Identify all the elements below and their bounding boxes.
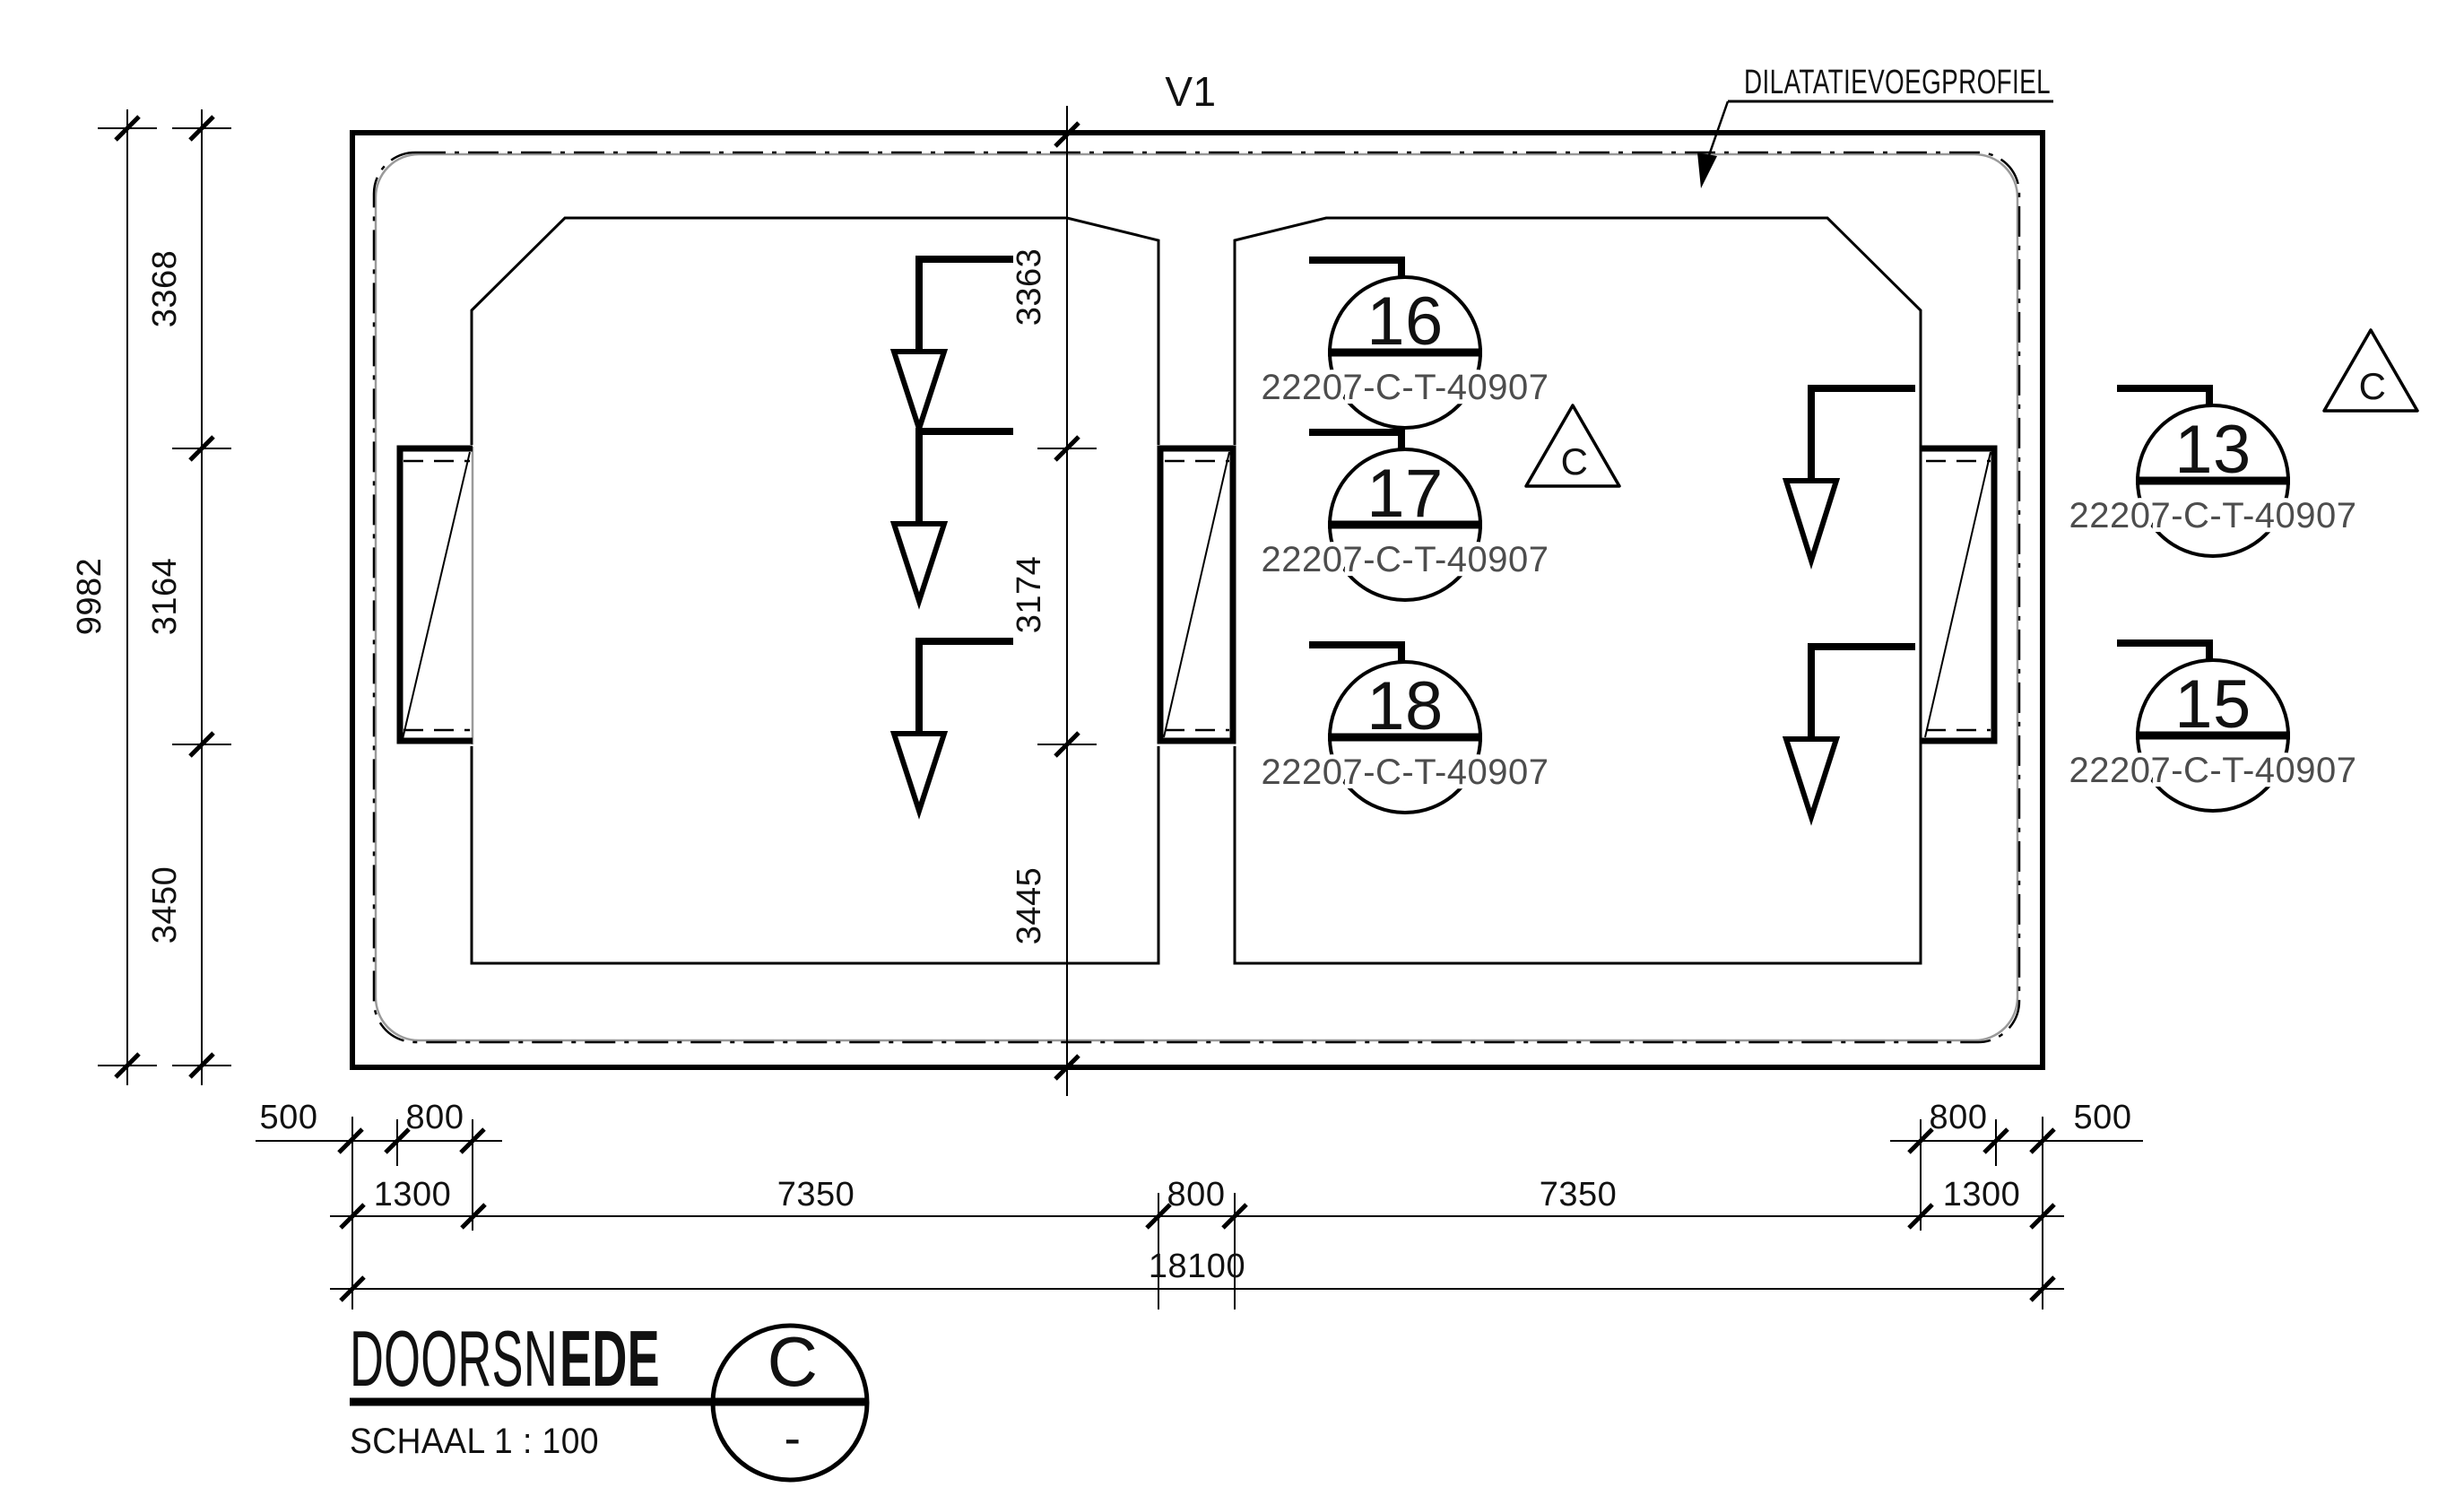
part-tag-13: 13 22207-C-T-40907 <box>2069 388 2356 556</box>
section-drawing-canvas: DILATATIEVOEGPROFIEL V1 9982 3368 3164 3… <box>0 0 2464 1505</box>
triangle-label: C <box>1561 440 1589 483</box>
section-circle-letter: C <box>768 1322 819 1401</box>
triangle-marker-right: C <box>2324 330 2417 411</box>
dim-800-right: 800 <box>1930 1099 1988 1136</box>
tag-code: 22207-C-T-40907 <box>1261 368 1549 407</box>
dim-7350-left: 7350 <box>777 1176 855 1214</box>
tag-number: 15 <box>2174 666 2251 743</box>
dim-left-1: 3368 <box>146 250 184 328</box>
dim-left-2: 3164 <box>146 558 184 636</box>
dim-left-total: 9982 <box>71 558 108 636</box>
triangle-label: C <box>2359 365 2387 407</box>
page-title: DOORSN <box>350 1314 558 1403</box>
left-wall-opening <box>395 445 478 746</box>
technical-drawing: DILATATIEVOEGPROFIEL V1 9982 3368 3164 3… <box>0 0 2464 1505</box>
dim-7350-right: 7350 <box>1540 1176 1618 1214</box>
dim-1300-right: 1300 <box>1943 1176 2021 1214</box>
middle-wall-opening <box>1155 445 1238 746</box>
callout-label: DILATATIEVOEGPROFIEL <box>1744 64 2051 101</box>
page-title-bold-part: EDE <box>560 1314 660 1403</box>
section-circle-sheet: - <box>784 1409 801 1466</box>
dim-1300-left: 1300 <box>374 1176 452 1214</box>
tag-number: 13 <box>2174 412 2251 488</box>
tag-code: 22207-C-T-40907 <box>2069 751 2356 790</box>
tag-code: 22207-C-T-40907 <box>1261 752 1549 792</box>
section-line-label: V1 <box>1165 68 1216 115</box>
part-tag-15: 15 22207-C-T-40907 <box>2069 643 2356 811</box>
tag-number: 18 <box>1366 668 1444 744</box>
right-wall-opening <box>1921 445 1999 746</box>
dim-left-3: 3450 <box>146 866 184 944</box>
dim-800-middle: 800 <box>1167 1176 1226 1214</box>
dim-total-width: 18100 <box>1149 1248 1245 1285</box>
tag-code: 22207-C-T-40907 <box>2069 496 2356 535</box>
dim-mid-1: 3363 <box>1011 248 1048 326</box>
dim-500-left: 500 <box>260 1099 318 1136</box>
dim-mid-2: 3174 <box>1011 556 1048 634</box>
title-block: DOORSN EDE SCHAAL 1 : 100 C - <box>350 1314 867 1480</box>
tag-code: 22207-C-T-40907 <box>1261 540 1549 579</box>
dim-500-right: 500 <box>2074 1099 2132 1136</box>
dim-800-left: 800 <box>406 1099 464 1136</box>
dim-mid-3: 3445 <box>1011 867 1048 945</box>
tag-number: 17 <box>1366 456 1444 532</box>
tag-number: 16 <box>1366 283 1444 360</box>
scale-label: SCHAAL 1 : 100 <box>350 1422 599 1461</box>
